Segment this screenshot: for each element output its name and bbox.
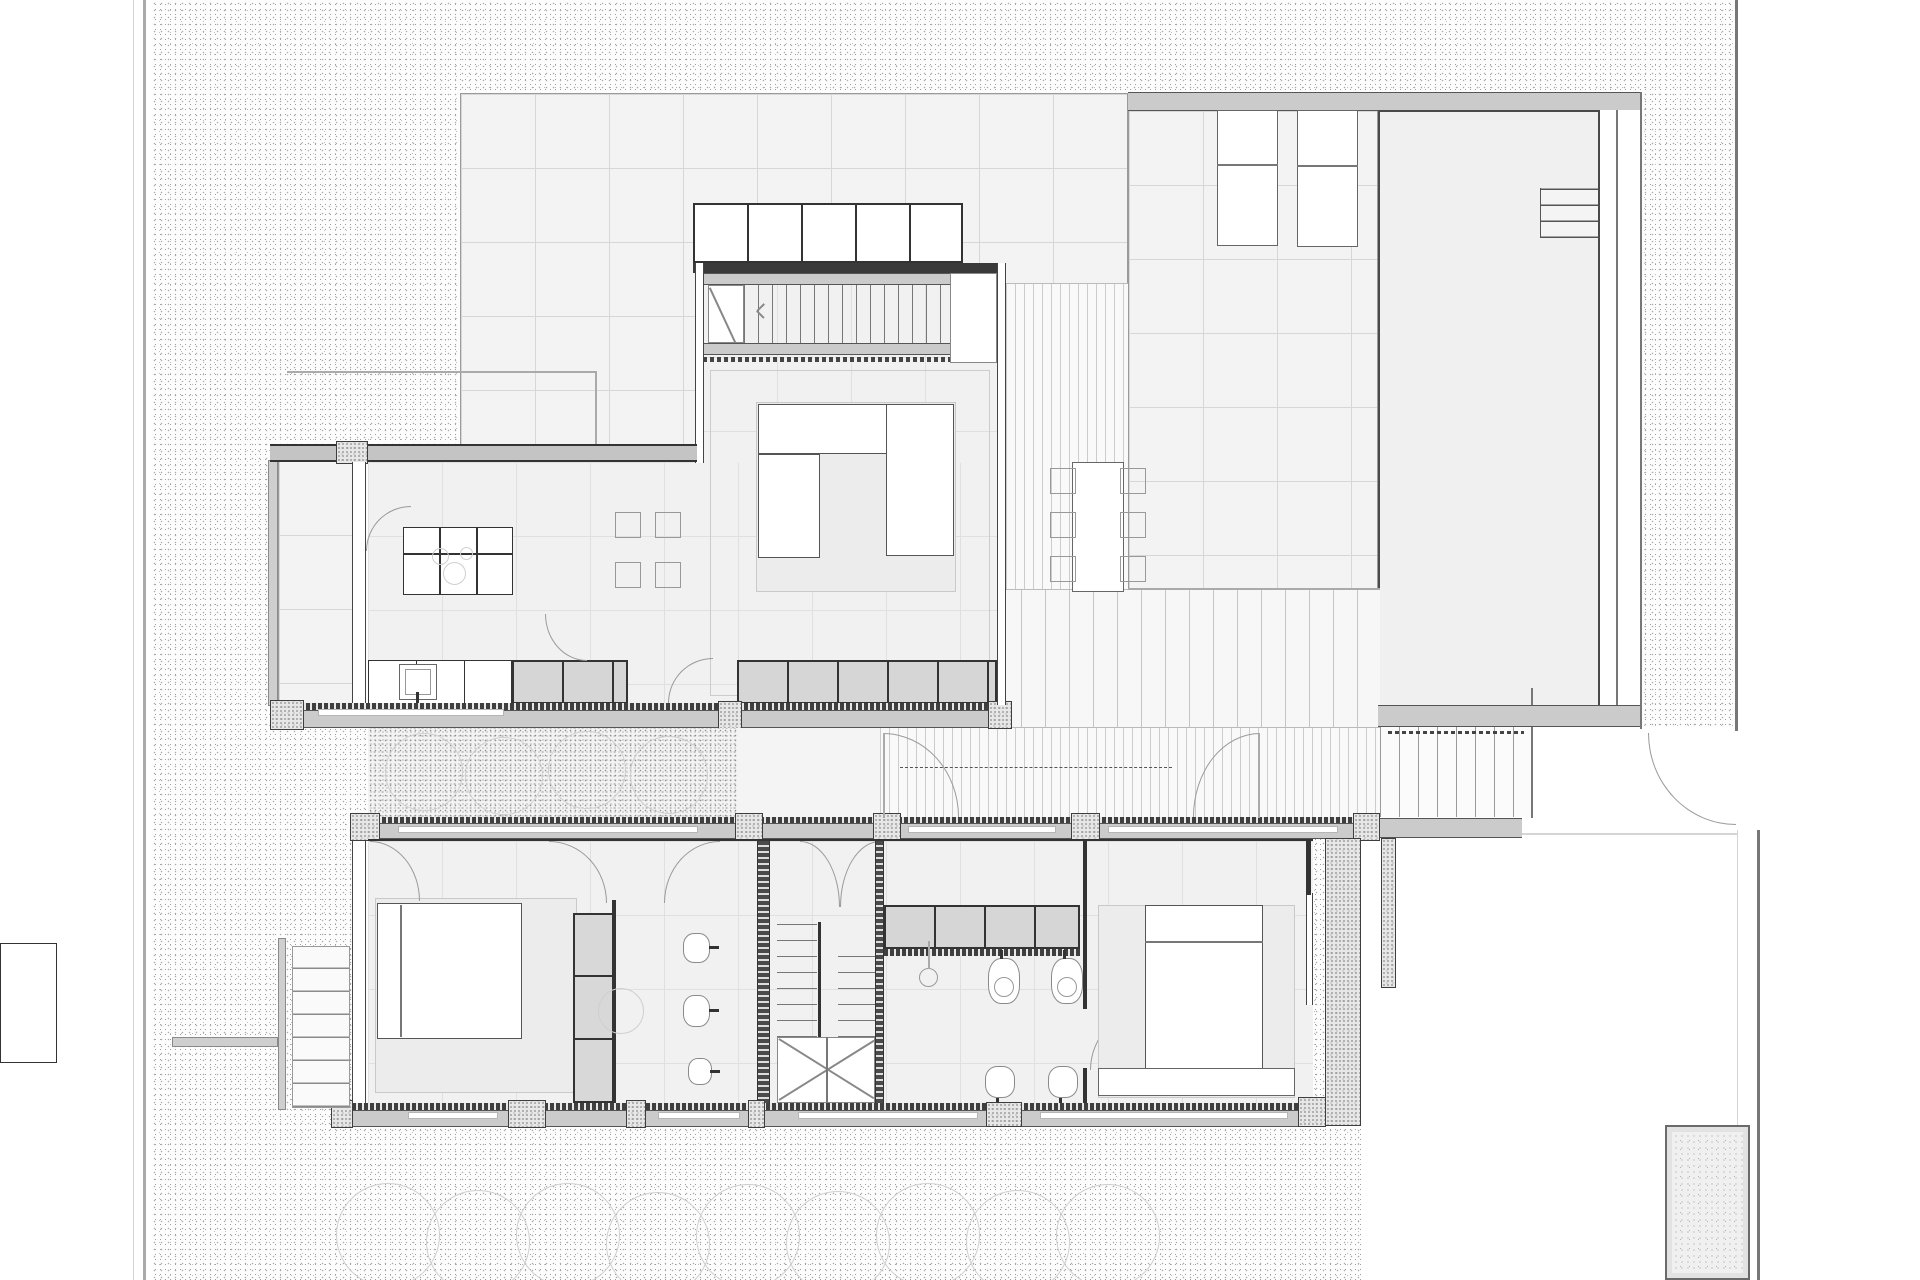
entry-walkway bbox=[737, 728, 880, 817]
living-east-glass bbox=[997, 263, 1006, 705]
sun-lounger-2-fold bbox=[1297, 165, 1358, 167]
boundary-left-line bbox=[143, 0, 146, 1280]
wing-south-window-1 bbox=[408, 1112, 498, 1119]
shrub-9 bbox=[1056, 1184, 1160, 1280]
outdoor-chair-3 bbox=[1050, 556, 1076, 582]
canopy-edge-line-v bbox=[595, 371, 597, 446]
wing-north-window-3 bbox=[1108, 826, 1338, 833]
south-pier-5 bbox=[986, 1102, 1022, 1127]
wing-south-window-3 bbox=[798, 1112, 978, 1119]
wing-north-window-1 bbox=[398, 826, 698, 833]
west-facade-glass bbox=[352, 462, 366, 706]
bath1-wc-3 bbox=[688, 1058, 712, 1085]
west-patio-wall bbox=[268, 460, 278, 706]
stair-down-right-flight bbox=[838, 948, 875, 1037]
south-pier-3 bbox=[626, 1100, 646, 1128]
wing-pier-1 bbox=[350, 813, 380, 841]
boundary-right-lower bbox=[1757, 830, 1760, 1280]
island-divider-h bbox=[403, 553, 513, 555]
shrub-7 bbox=[876, 1183, 980, 1280]
bath2-basin-1-bowl bbox=[994, 977, 1014, 997]
se-garden-wall bbox=[1381, 838, 1396, 988]
wing-pier-4 bbox=[1071, 813, 1100, 841]
plant-circle-2 bbox=[465, 737, 543, 815]
deck-door-leaf-2 bbox=[1258, 733, 1260, 818]
dining-chair-2 bbox=[655, 512, 681, 538]
stair-up-treads bbox=[744, 285, 950, 343]
outdoor-table bbox=[1072, 462, 1124, 592]
floor-plan bbox=[0, 0, 1920, 1280]
wing-pier-3 bbox=[873, 813, 901, 841]
planter-box bbox=[1665, 1125, 1750, 1280]
exterior-retaining-wall bbox=[172, 1037, 278, 1047]
stair-lower-stringer bbox=[703, 343, 950, 355]
pool-coping-line bbox=[1616, 110, 1618, 707]
pool-south-band bbox=[1378, 705, 1640, 727]
plant-circle-3 bbox=[548, 731, 626, 809]
bath1-east-wall bbox=[757, 841, 770, 1103]
kitchen-north-pier bbox=[336, 441, 368, 464]
wing-east-pier bbox=[1325, 838, 1361, 1126]
bath2-wc-1 bbox=[985, 1066, 1015, 1098]
bath1-wc-2 bbox=[683, 995, 710, 1027]
canopy-edge-line bbox=[287, 371, 597, 373]
neighbor-building bbox=[0, 943, 57, 1063]
stair-upper-stringer bbox=[703, 273, 950, 285]
wing-south-window-2 bbox=[658, 1112, 740, 1119]
south-pier-2 bbox=[508, 1100, 546, 1128]
boundary-right-upper bbox=[1735, 0, 1738, 731]
bath2-pendant-stem bbox=[928, 941, 930, 969]
wing-west-glass bbox=[352, 841, 366, 1107]
pier-upper-se bbox=[988, 701, 1012, 729]
upper-south-window bbox=[318, 709, 504, 716]
entry-steps bbox=[1380, 727, 1532, 817]
stair-winder-mid-line bbox=[826, 1037, 828, 1103]
bath1-tap-1 bbox=[709, 946, 719, 949]
wing-north-window-2 bbox=[908, 826, 1056, 833]
island-divider-2 bbox=[476, 527, 478, 595]
south-pier-4 bbox=[748, 1100, 765, 1128]
outdoor-chair-1 bbox=[1050, 468, 1076, 494]
west-patio-tiles bbox=[278, 460, 354, 706]
pool-coping bbox=[1600, 110, 1640, 707]
stair-down-left-flight bbox=[777, 922, 817, 1037]
outdoor-chair-2 bbox=[1050, 512, 1076, 538]
sideboard-modules bbox=[737, 660, 997, 704]
boundary-left-inner-line bbox=[133, 0, 134, 1280]
sofa-chaise bbox=[758, 454, 820, 558]
bath2-vanity bbox=[884, 905, 1080, 949]
bedroom1-pillow-line bbox=[400, 905, 402, 1037]
master-east-glass bbox=[1306, 893, 1313, 1005]
pool-top-band bbox=[1128, 92, 1640, 111]
cooktop-burner-1 bbox=[432, 548, 449, 565]
bath1-wc-1 bbox=[683, 933, 710, 963]
master-pillow-line bbox=[1145, 941, 1263, 943]
wing-south-wall-hatch bbox=[352, 1103, 1325, 1110]
sofa-corner bbox=[886, 404, 954, 556]
bath2-basin-2-tap bbox=[1063, 950, 1066, 959]
cooktop-burner-2 bbox=[443, 562, 466, 585]
dining-chair-3 bbox=[615, 562, 641, 588]
wing-south-window-4 bbox=[1040, 1112, 1288, 1119]
shrub-1 bbox=[336, 1183, 440, 1280]
entry-steps-south-slab bbox=[1378, 818, 1522, 838]
master-bed bbox=[1145, 905, 1263, 1093]
kitchen-gray-modules bbox=[512, 660, 628, 704]
bath2-basin-2-bowl bbox=[1057, 977, 1077, 997]
outdoor-chair-6 bbox=[1120, 556, 1146, 582]
kitchen-island bbox=[403, 527, 513, 595]
south-pier-6 bbox=[1298, 1097, 1326, 1127]
pier-upper-sw bbox=[270, 700, 304, 730]
plant-circle-4 bbox=[630, 736, 708, 814]
counter-divider-2 bbox=[464, 660, 465, 704]
bath1-tap-3 bbox=[710, 1070, 720, 1073]
bath2-basin-1-tap bbox=[1000, 950, 1003, 959]
bath2-pendant bbox=[919, 968, 938, 987]
outdoor-chair-5 bbox=[1120, 512, 1146, 538]
bath2-master-wall-upper bbox=[1083, 841, 1087, 1009]
closet-row bbox=[693, 203, 963, 263]
bath1-shower-circle bbox=[598, 988, 644, 1034]
exterior-stair-treads bbox=[292, 946, 350, 1108]
kitchen-counter bbox=[368, 660, 512, 704]
sun-lounger-1 bbox=[1217, 110, 1278, 246]
cooktop-burner-3 bbox=[460, 547, 473, 560]
bath2-wc-2 bbox=[1048, 1066, 1078, 1098]
bath2-vanity-hatch bbox=[884, 949, 1080, 956]
pier-upper-south-mid bbox=[718, 701, 742, 729]
pool-steps bbox=[1540, 188, 1598, 238]
pool-east-wall-line bbox=[1640, 92, 1642, 729]
entry-steps-ticks bbox=[1388, 731, 1524, 734]
bath2-master-wall-lower bbox=[1083, 1068, 1087, 1103]
stair-side-box bbox=[950, 273, 997, 363]
bedroom1-bed bbox=[377, 903, 522, 1039]
kitchen-north-wall bbox=[270, 444, 697, 462]
sun-lounger-1-fold bbox=[1217, 164, 1278, 166]
dining-chair-1 bbox=[615, 512, 641, 538]
deck-door-leaf-1 bbox=[883, 733, 885, 818]
dining-chair-4 bbox=[655, 562, 681, 588]
master-east-wall bbox=[1306, 841, 1311, 895]
sun-lounger-2 bbox=[1297, 110, 1358, 247]
master-bench bbox=[1098, 1068, 1295, 1096]
shrub-3 bbox=[516, 1183, 620, 1280]
deck-south bbox=[997, 590, 1380, 727]
wing-pier-5 bbox=[1353, 813, 1380, 841]
plant-circle-1 bbox=[385, 733, 463, 811]
outdoor-chair-4 bbox=[1120, 468, 1146, 494]
stair-west-wall bbox=[695, 263, 704, 463]
wing-pier-2 bbox=[735, 813, 763, 841]
stair-north-wall bbox=[693, 263, 1006, 273]
shrub-5 bbox=[696, 1184, 800, 1280]
bath1-tap-2 bbox=[709, 1009, 719, 1012]
stairhall-east-wall bbox=[875, 841, 884, 1103]
exterior-stair-wall bbox=[278, 938, 286, 1110]
